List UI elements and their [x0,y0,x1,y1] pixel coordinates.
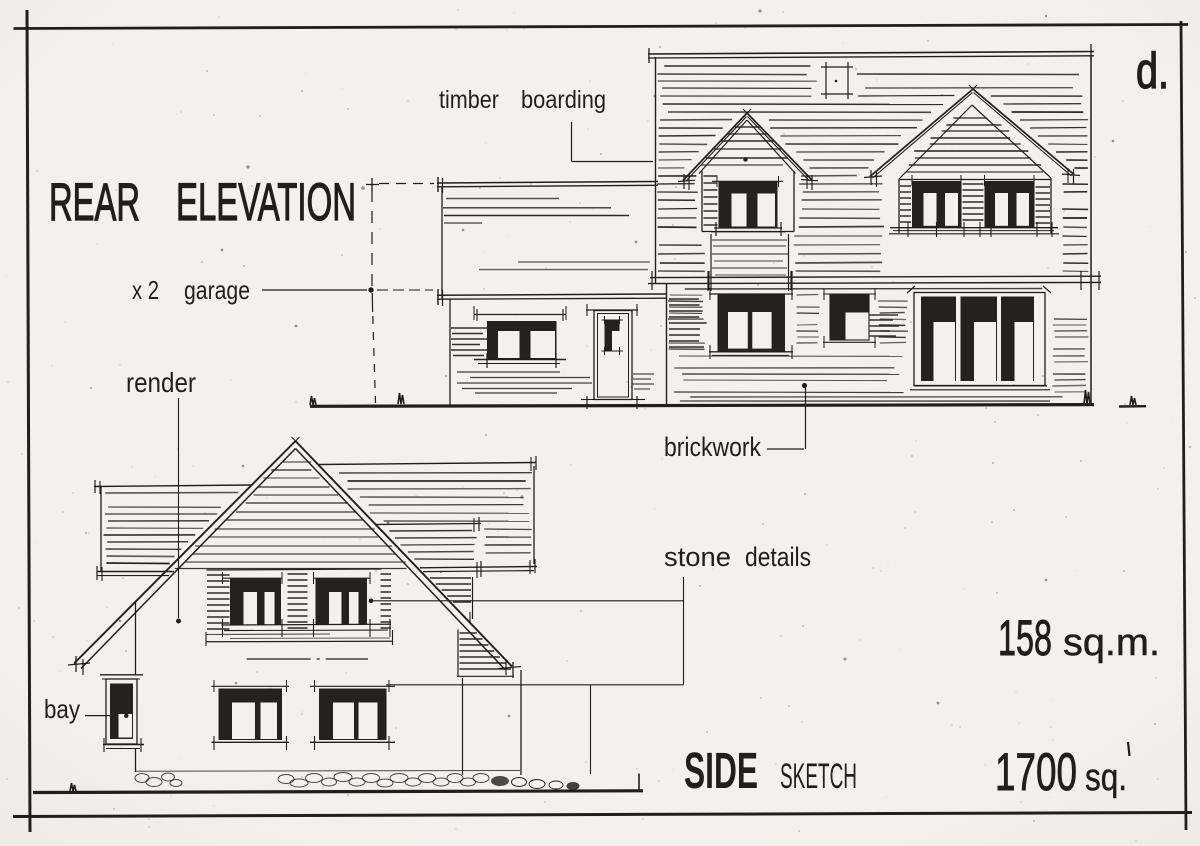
svg-text:REAR: REAR [49,173,140,232]
svg-text:ELEVATION: ELEVATION [176,173,356,232]
svg-text:d.: d. [1136,43,1169,99]
svg-text:x 2: x 2 [132,275,159,305]
svg-text:render: render [126,367,196,398]
svg-text:boarding: boarding [521,86,606,114]
svg-text:bay: bay [44,694,80,724]
svg-text:garage: garage [184,275,250,305]
svg-text:details: details [745,542,811,572]
svg-text:158: 158 [998,610,1052,666]
svg-text:sq.m.: sq.m. [1063,622,1160,664]
svg-text:1700: 1700 [995,743,1077,802]
svg-text:brickwork: brickwork [664,432,761,462]
svg-text:sq.: sq. [1085,757,1127,799]
svg-text:SKETCH: SKETCH [780,757,857,796]
svg-text:stone: stone [664,542,731,572]
svg-text:SIDE: SIDE [684,742,758,799]
svg-text:timber: timber [439,86,499,114]
